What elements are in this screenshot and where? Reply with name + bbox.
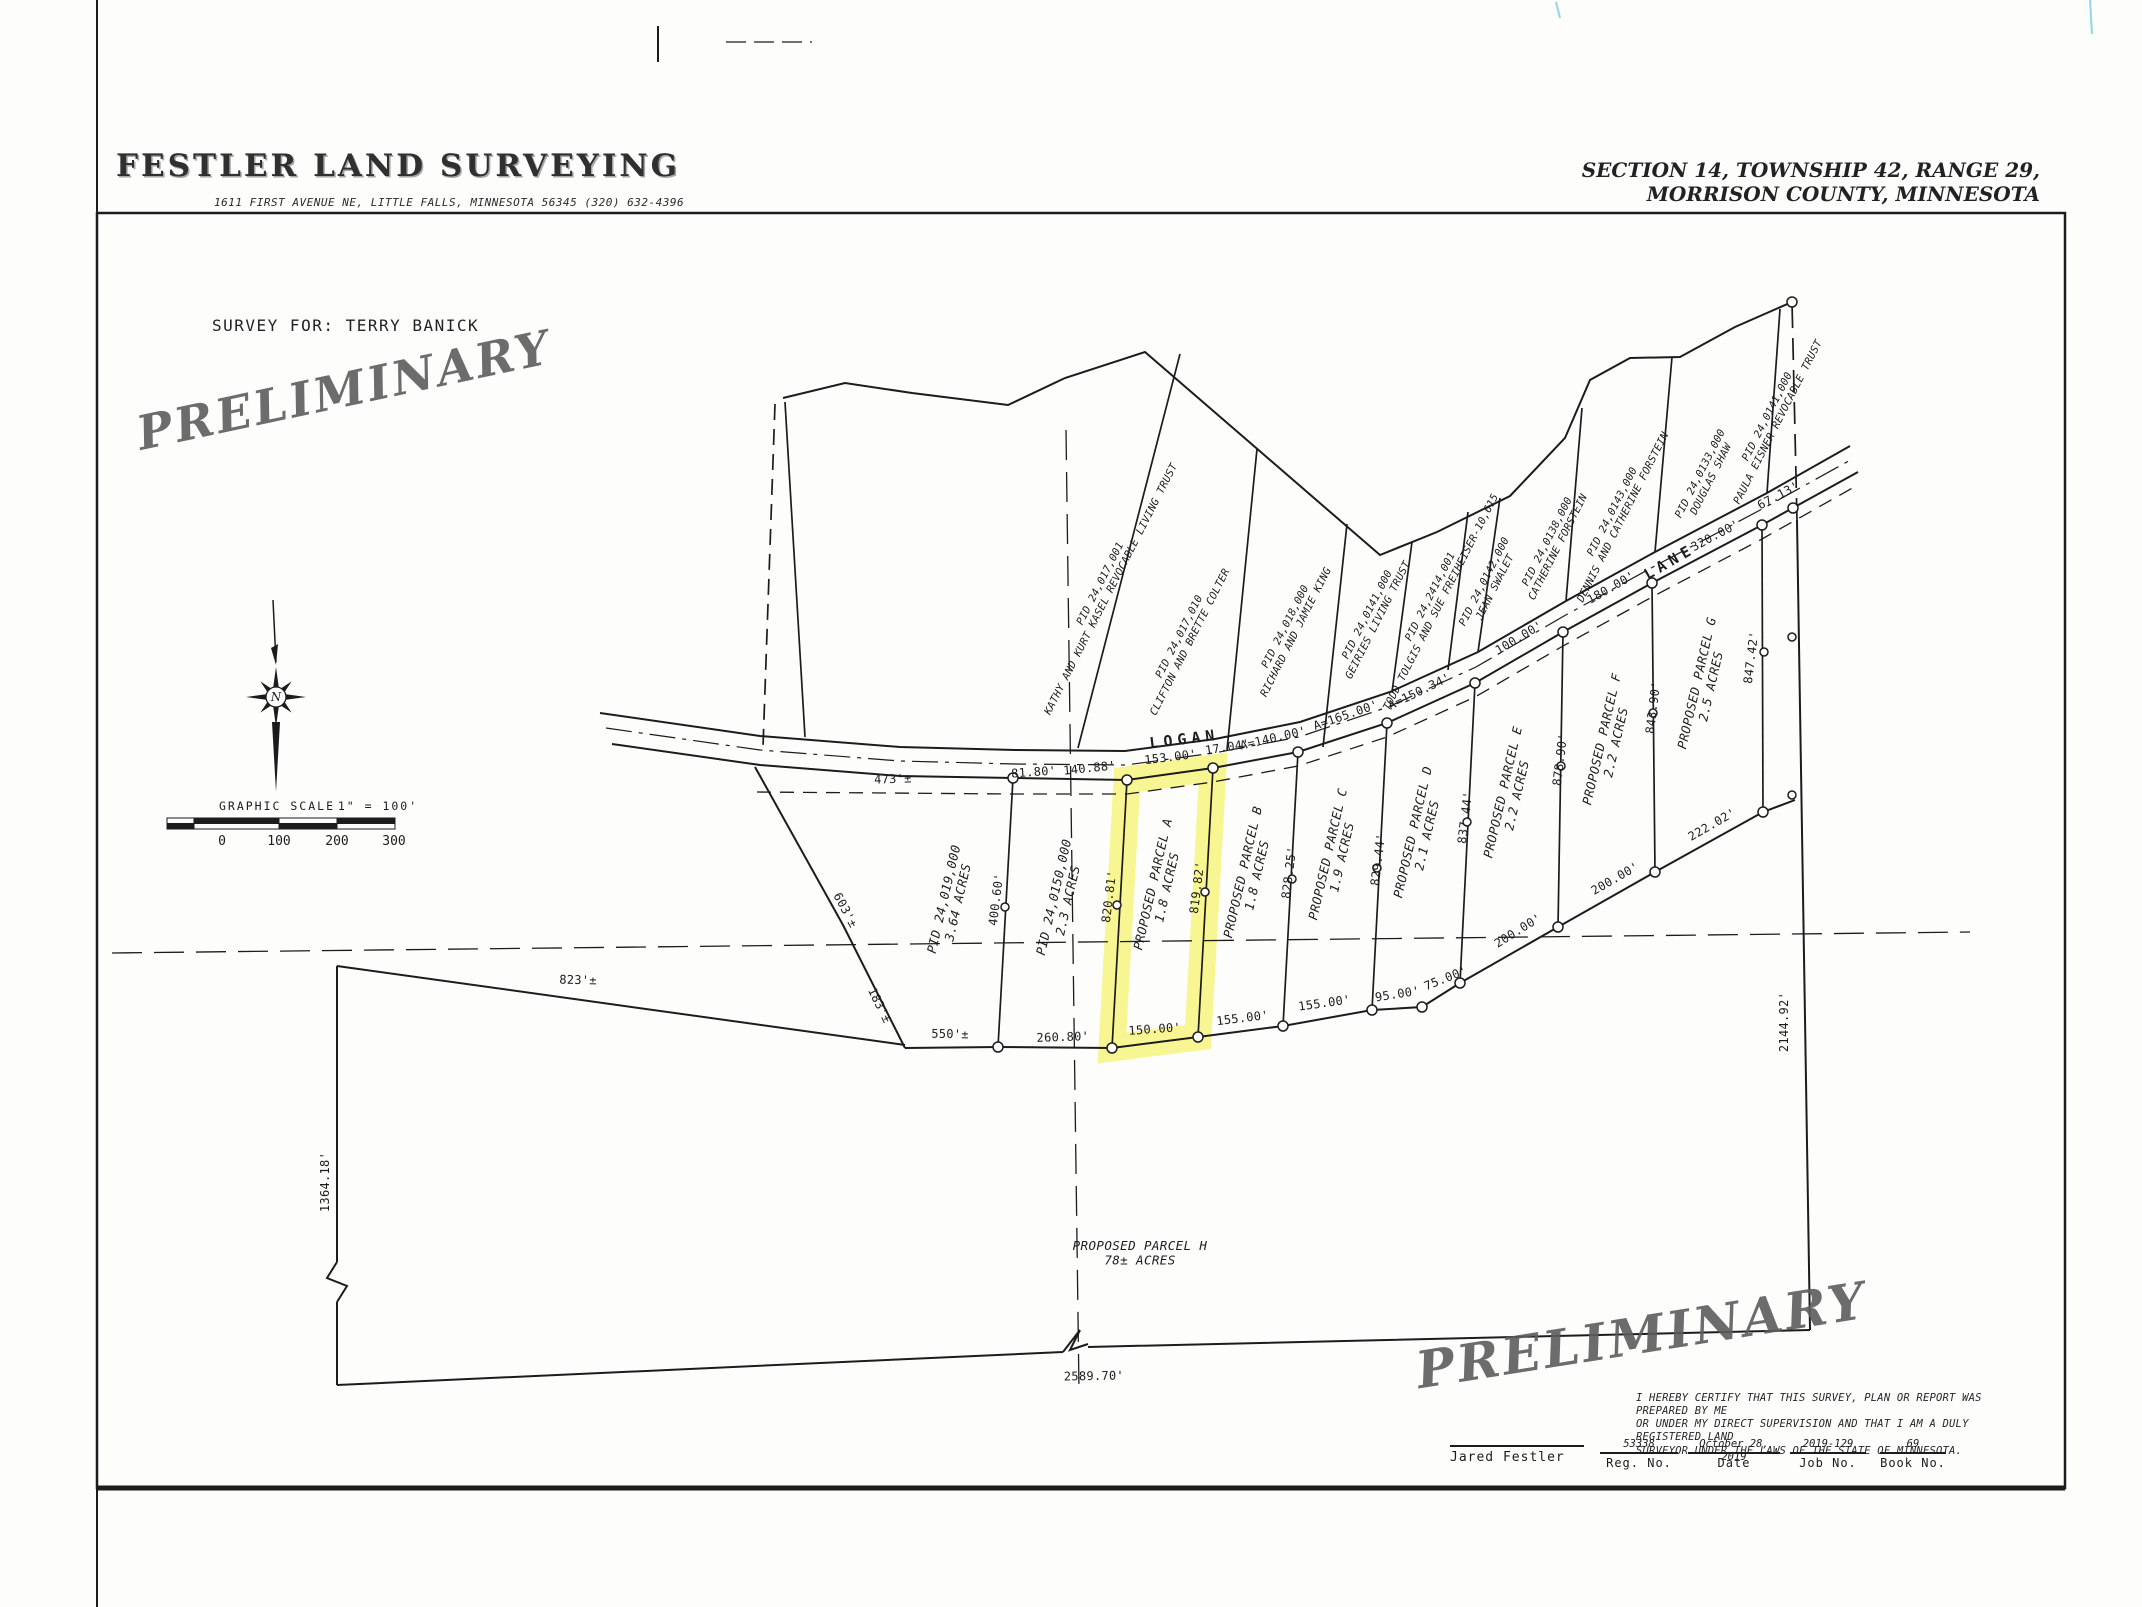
- plat-label: 847.42': [1741, 631, 1761, 685]
- north-arrow: N: [246, 600, 306, 792]
- plat-label: 843.90': [1643, 681, 1663, 735]
- company-title: FESTLER LAND SURVEYING: [116, 148, 680, 184]
- company-address: 1611 FIRST AVENUE NE, LITTLE FALLS, MINN…: [214, 196, 684, 209]
- scale-bar: [167, 818, 395, 829]
- scale-tick-300: 300: [382, 834, 405, 849]
- plat-label: 155.00': [1216, 1008, 1270, 1028]
- scan-artifact: [1556, 0, 2092, 34]
- plat-label: 75.00': [1422, 963, 1469, 993]
- scale-tick-200: 200: [325, 834, 348, 849]
- plat-label: 140.88': [1063, 758, 1117, 777]
- plat-label: PROPOSED PARCEL E2.2 ACRES: [1480, 725, 1539, 863]
- plat-label: 155.00': [1297, 992, 1351, 1013]
- plat-label: 200.00': [1492, 911, 1544, 951]
- book-no-value: 69: [1880, 1438, 1946, 1454]
- plat-label: 260.80': [1036, 1029, 1089, 1045]
- plat-label: 183'±: [865, 985, 894, 1025]
- book-no-field: 69 Book No.: [1880, 1438, 1946, 1470]
- plat-label: 400.60': [986, 873, 1006, 927]
- plat-label: PID 24,017,001KATHY AND KURT KASEL REVOC…: [1031, 456, 1180, 718]
- compass-south-needle: [272, 722, 280, 792]
- plat-label: 1364.18': [318, 1152, 332, 1212]
- plat-label: 100.00': [1493, 618, 1545, 657]
- job-no-label: Job No.: [1790, 1454, 1866, 1470]
- plat-label: A=165.00': [1311, 698, 1380, 733]
- scale-ratio: 1" = 100': [338, 799, 418, 813]
- scale-tick-0: 0: [218, 834, 226, 849]
- plat-label: PROPOSED PARCEL G2.5 ACRES: [1674, 616, 1733, 754]
- graphic-scale: GRAPHIC SCALE 1" = 100' 0 100 200 300: [167, 799, 418, 849]
- plat-label: 222.02': [1686, 805, 1739, 843]
- east-boundary: [1797, 520, 1810, 1330]
- compass-n-label: N: [270, 690, 282, 704]
- book-no-label: Book No.: [1880, 1454, 1946, 1470]
- plat-label: 828.25': [1279, 846, 1299, 900]
- plat-label: PID 24,0141,000PAULA EISNER REVOCABLE TR…: [1721, 332, 1826, 506]
- reg-no-value: 53338: [1600, 1438, 1678, 1454]
- certification-line-1: I HEREBY CERTIFY THAT THIS SURVEY, PLAN …: [1636, 1392, 2008, 1418]
- surveyor-signature-name: Jared Festler: [1450, 1445, 1584, 1465]
- scale-tick-100: 100: [267, 834, 290, 849]
- reg-no-label: Reg. No.: [1600, 1454, 1678, 1470]
- location-line-2: MORRISON COUNTY, MINNESOTA: [1560, 182, 2040, 206]
- reg-no-field: 53338 Reg. No.: [1600, 1438, 1678, 1470]
- plat-label: 823'±: [559, 973, 597, 988]
- plat-label: 550'±: [931, 1027, 969, 1042]
- plat-label: PID 24,0133,000DOUGLAS SHAW: [1673, 427, 1739, 525]
- plat-label: PID 24,019,0003.64 ACRES: [924, 843, 978, 958]
- plat-label: PID 24,017,010CLIFTON AND BRETTE COLTER: [1137, 561, 1232, 717]
- plat-label: 473'±: [874, 771, 912, 786]
- section-township-range: SECTION 14, TOWNSHIP 42, RANGE 29, MORRI…: [1560, 158, 2040, 206]
- date-value: October 28, 2019: [1688, 1438, 1780, 1454]
- scale-title: GRAPHIC SCALE: [219, 799, 335, 813]
- plat-label: 2589.70': [1064, 1368, 1124, 1383]
- job-no-value: 2019-129: [1790, 1438, 1866, 1454]
- plat-label: PROPOSED PARCEL B1.8 ACRES: [1220, 805, 1279, 943]
- job-no-field: 2019-129 Job No.: [1790, 1438, 1866, 1470]
- plat-label: PROPOSED PARCEL F2.2 ACRES: [1579, 672, 1638, 810]
- compass-arrowhead: [271, 644, 278, 665]
- plat-label: PROPOSED PARCEL H78± ACRES: [1073, 1238, 1208, 1267]
- plat-label: PID 24,018,000RICHARD AND JAMIE KING: [1247, 560, 1334, 699]
- plat-label: PROPOSED PARCEL D2.1 ACRES: [1390, 765, 1449, 903]
- plat-label: PROPOSED PARCEL A1.8 ACRES: [1130, 817, 1189, 955]
- plat-label: 2144.92': [1777, 992, 1791, 1052]
- plat-label: PROPOSED PARCEL C1.9 ACRES: [1305, 787, 1364, 925]
- location-line-1: SECTION 14, TOWNSHIP 42, RANGE 29,: [1560, 158, 2040, 182]
- plat-drawing: N GRAPHIC SCALE 1" = 100' 0 100 200 300 …: [0, 0, 2142, 1607]
- survey-sheet: N GRAPHIC SCALE 1" = 100' 0 100 200 300 …: [0, 0, 2142, 1607]
- plat-label: 829.44': [1368, 833, 1388, 887]
- date-label: Date: [1688, 1454, 1780, 1470]
- plat-label: PID 24,0138,000CATHERINE FORSTEIN: [1515, 486, 1590, 602]
- plat-label: 95.00': [1374, 984, 1421, 1005]
- plat-label: 200.00': [1589, 859, 1642, 897]
- plat-label: 878.90': [1550, 733, 1570, 787]
- plat-label: 837.44': [1455, 791, 1475, 845]
- plat-label: 320.00': [1689, 517, 1742, 554]
- date-field: October 28, 2019 Date: [1688, 1438, 1780, 1470]
- survey-for: SURVEY FOR: TERRY BANICK: [212, 316, 479, 335]
